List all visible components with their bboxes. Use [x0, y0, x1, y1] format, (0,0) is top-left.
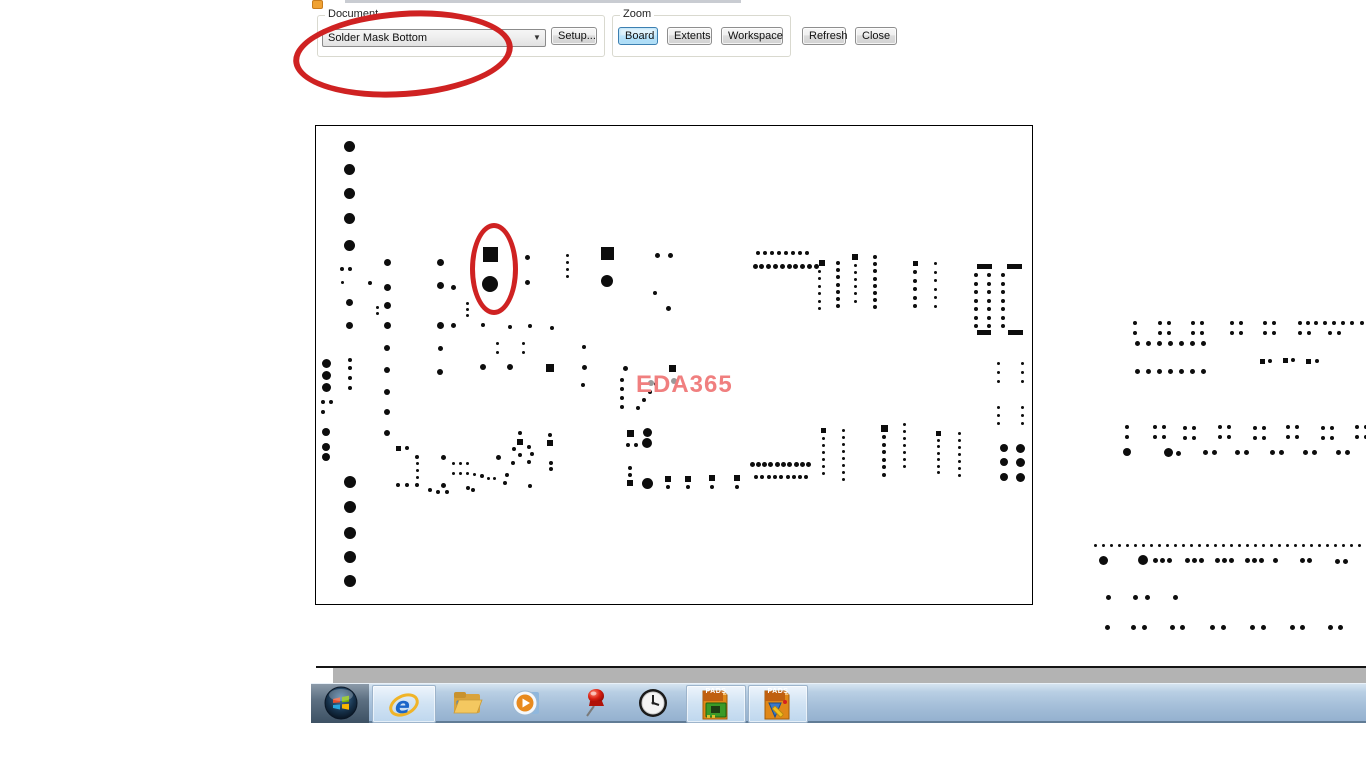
pushpin-icon[interactable]	[577, 687, 609, 719]
pad	[1253, 436, 1257, 440]
pad	[1157, 369, 1162, 374]
pad	[1138, 555, 1148, 565]
pad	[1272, 331, 1276, 335]
pad	[1283, 358, 1288, 363]
pad	[1153, 435, 1157, 439]
pad	[1135, 341, 1140, 346]
pad	[1094, 544, 1097, 547]
pad	[1229, 558, 1234, 563]
pad	[1135, 369, 1140, 374]
pad	[1278, 544, 1281, 547]
pad	[1106, 595, 1111, 600]
pad	[1142, 544, 1145, 547]
pad	[1279, 450, 1284, 455]
window-top-edge	[345, 0, 741, 3]
pad	[1162, 425, 1166, 429]
pad	[1214, 544, 1217, 547]
pad	[1179, 341, 1184, 346]
pad	[1298, 331, 1302, 335]
refresh-button[interactable]: Refresh	[802, 27, 846, 45]
pad	[1312, 450, 1317, 455]
pad	[1201, 369, 1206, 374]
pad	[1328, 331, 1332, 335]
pads-layout-icon[interactable]	[699, 689, 731, 721]
pad	[1192, 558, 1197, 563]
pad	[1286, 425, 1290, 429]
pad	[1160, 558, 1165, 563]
pad	[1326, 544, 1329, 547]
pad	[1218, 425, 1222, 429]
pad	[1262, 436, 1266, 440]
pad	[1270, 544, 1273, 547]
pad	[1250, 625, 1255, 630]
pad	[1268, 359, 1272, 363]
pad	[1133, 321, 1137, 325]
zoom-extents-button[interactable]: Extents	[667, 27, 712, 45]
pad	[1158, 544, 1161, 547]
pad	[1355, 425, 1359, 429]
pad	[1198, 544, 1201, 547]
pad	[1254, 544, 1257, 547]
pad	[1290, 625, 1295, 630]
watermark-text: EDA365	[636, 371, 733, 399]
pad	[1199, 558, 1204, 563]
pad	[1338, 625, 1343, 630]
pads-logic-icon[interactable]	[761, 689, 793, 721]
pad	[1215, 558, 1220, 563]
pad	[1270, 450, 1275, 455]
pad	[1212, 450, 1217, 455]
pad	[1167, 558, 1172, 563]
pad	[1110, 544, 1113, 547]
pad	[1298, 321, 1302, 325]
pad	[1173, 595, 1178, 600]
pad	[1192, 436, 1196, 440]
pad	[1201, 341, 1206, 346]
pad	[1323, 321, 1327, 325]
pad	[1164, 448, 1173, 457]
pad	[1222, 558, 1227, 563]
pad	[1179, 369, 1184, 374]
pad	[1185, 558, 1190, 563]
pad	[1239, 321, 1243, 325]
svg-text:e: e	[395, 694, 410, 719]
pad	[1235, 450, 1240, 455]
pad	[1230, 331, 1234, 335]
pad	[1295, 425, 1299, 429]
pad	[1158, 331, 1162, 335]
pad	[1183, 426, 1187, 430]
close-button[interactable]: Close	[855, 27, 897, 45]
pad	[1318, 544, 1321, 547]
chevron-down-icon[interactable]: ▼	[529, 30, 545, 46]
pad	[1210, 625, 1215, 630]
pad	[1190, 544, 1193, 547]
pad	[1291, 358, 1295, 362]
taskbar: e	[311, 683, 1366, 723]
pad	[1342, 544, 1345, 547]
pad	[1174, 544, 1177, 547]
pad	[1286, 435, 1290, 439]
pad	[1134, 544, 1137, 547]
annotation-ellipse-pads	[470, 223, 518, 315]
taskbar-button-ie[interactable]: e	[372, 685, 436, 723]
pad	[1272, 321, 1276, 325]
pad	[1153, 558, 1158, 563]
pad	[1227, 435, 1231, 439]
pad	[1180, 625, 1185, 630]
pad	[1314, 321, 1318, 325]
pad	[1146, 341, 1151, 346]
window-bottom-strip	[333, 668, 1366, 683]
pad	[1102, 544, 1105, 547]
pad	[1200, 321, 1204, 325]
pad	[1183, 436, 1187, 440]
media-player-icon[interactable]	[511, 687, 543, 719]
pad	[1307, 558, 1312, 563]
pad	[1302, 544, 1305, 547]
clock-icon[interactable]	[637, 687, 669, 719]
pad	[1286, 544, 1289, 547]
pad	[1167, 321, 1171, 325]
pad	[1350, 544, 1353, 547]
pad	[1315, 359, 1319, 363]
pad	[1335, 559, 1340, 564]
pad	[1330, 426, 1334, 430]
pad	[1328, 625, 1333, 630]
pad	[1246, 544, 1249, 547]
pad	[1126, 544, 1129, 547]
pad	[1321, 436, 1325, 440]
internet-explorer-icon[interactable]: e	[388, 689, 420, 721]
pad	[1118, 544, 1121, 547]
pad	[1168, 369, 1173, 374]
pad	[1345, 450, 1350, 455]
pad	[1166, 544, 1169, 547]
pad	[1358, 544, 1361, 547]
pad	[1168, 341, 1173, 346]
pad	[1123, 448, 1131, 456]
pad	[1343, 559, 1348, 564]
pad	[1355, 435, 1359, 439]
start-orb-icon[interactable]	[324, 686, 358, 720]
pad	[1263, 331, 1267, 335]
pad	[1321, 426, 1325, 430]
pad	[1261, 625, 1266, 630]
pad	[1192, 426, 1196, 430]
pad	[1133, 331, 1137, 335]
pad	[1167, 331, 1171, 335]
pad	[1221, 625, 1226, 630]
pad	[1300, 558, 1305, 563]
pad	[1262, 544, 1265, 547]
pad	[1336, 450, 1341, 455]
pad	[1259, 558, 1264, 563]
start-button[interactable]	[311, 684, 369, 723]
pad	[1105, 625, 1110, 630]
pad	[1360, 321, 1364, 325]
pad	[1260, 359, 1265, 364]
board-outline	[315, 125, 1033, 605]
pad	[1146, 369, 1151, 374]
pad	[1310, 544, 1313, 547]
pad	[1239, 331, 1243, 335]
pad	[1190, 369, 1195, 374]
pad	[1157, 341, 1162, 346]
pad	[1307, 331, 1311, 335]
pad	[1153, 425, 1157, 429]
pad	[1350, 321, 1354, 325]
pad	[1238, 544, 1241, 547]
pad	[1306, 321, 1310, 325]
pad	[1330, 436, 1334, 440]
pad	[1263, 321, 1267, 325]
pad	[1142, 625, 1147, 630]
setup-button[interactable]: Setup...	[551, 27, 597, 45]
pad	[1191, 321, 1195, 325]
pad	[1222, 544, 1225, 547]
pad	[1176, 451, 1181, 456]
pad	[1303, 450, 1308, 455]
pad	[1337, 331, 1341, 335]
pad	[1099, 556, 1108, 565]
pad	[1306, 359, 1311, 364]
pad	[1262, 426, 1266, 430]
pad	[1191, 331, 1195, 335]
pad	[1252, 558, 1257, 563]
zoom-board-button[interactable]: Board	[618, 27, 658, 45]
pad	[1334, 544, 1337, 547]
pad	[1300, 625, 1305, 630]
pad	[1158, 321, 1162, 325]
pad	[1294, 544, 1297, 547]
pad	[1150, 544, 1153, 547]
pad	[1182, 544, 1185, 547]
pad	[1133, 595, 1138, 600]
taskbar-button-pads-layout[interactable]: PADS	[686, 685, 746, 723]
pad	[1131, 625, 1136, 630]
pad	[1125, 435, 1129, 439]
pad	[1200, 331, 1204, 335]
pad	[1253, 426, 1257, 430]
pad	[1230, 544, 1233, 547]
pad	[1125, 425, 1129, 429]
pad	[1273, 558, 1278, 563]
pad	[1244, 450, 1249, 455]
pad	[1245, 558, 1250, 563]
pad	[1145, 595, 1150, 600]
app-corner-icon	[312, 0, 323, 9]
pad	[1230, 321, 1234, 325]
pad	[1203, 450, 1208, 455]
taskbar-button-pads-logic[interactable]: PADS	[748, 685, 808, 723]
pad	[1190, 341, 1195, 346]
pad	[1295, 435, 1299, 439]
zoom-workspace-button[interactable]: Workspace	[721, 27, 783, 45]
windows-explorer-icon[interactable]	[451, 687, 483, 719]
pad	[1227, 425, 1231, 429]
pad	[1162, 435, 1166, 439]
pad	[1218, 435, 1222, 439]
pad	[1170, 625, 1175, 630]
zoom-group-label: Zoom	[620, 8, 654, 20]
pad	[1341, 321, 1345, 325]
pad	[1332, 321, 1336, 325]
pad	[1206, 544, 1209, 547]
